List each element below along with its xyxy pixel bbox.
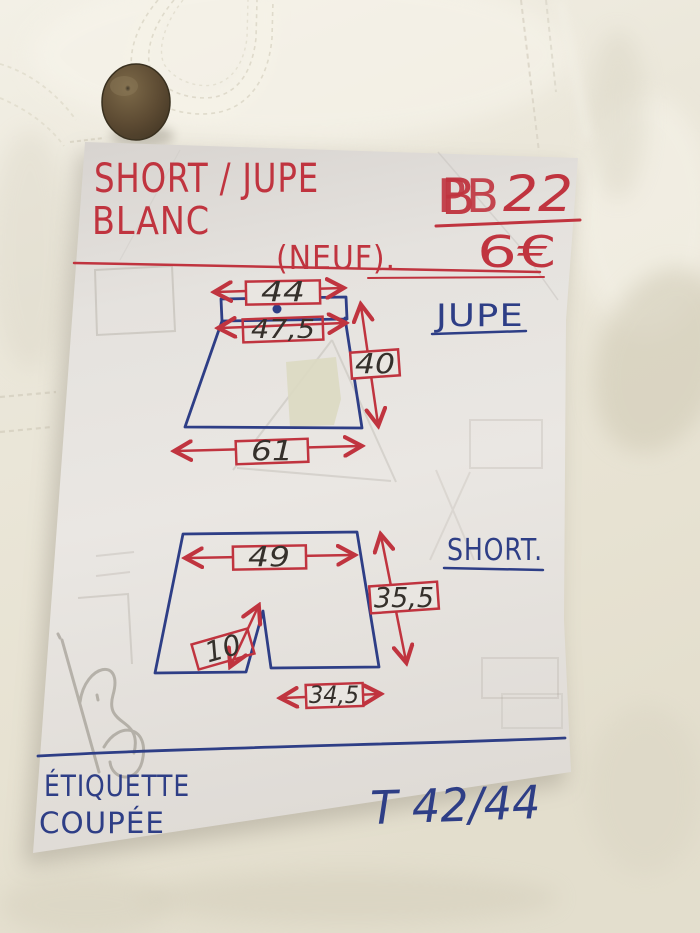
lot-code: PB B 22	[436, 165, 580, 226]
lot-code-overlay: B	[441, 168, 475, 226]
condition-text: (NEUF).	[276, 238, 396, 277]
fabric-fold-shadow	[587, 705, 700, 875]
tape-patch	[286, 357, 341, 427]
lot-code-number: 22	[503, 165, 573, 223]
jupe-label: JUPE	[434, 298, 524, 334]
brass-button-icon	[102, 64, 170, 140]
short-length-value: 35,5	[374, 581, 434, 614]
size-text: T 42/44	[369, 775, 541, 835]
fabric-fold-shadow	[140, 872, 560, 924]
jupe-length-value: 40	[355, 347, 395, 380]
note-title-line2: BLANC	[92, 199, 210, 243]
price-underline-red	[368, 277, 544, 278]
photo-canvas: SHORT / JUPE BLANC PB B 22 (NEUF). 6€ 44	[0, 0, 700, 933]
short-waist-width-value: 49	[248, 540, 290, 573]
short-label: SHORT.	[447, 533, 543, 568]
button-highlight	[110, 76, 138, 96]
jupe-waist-width-value: 47,5	[251, 315, 315, 345]
jupe-hem-width-value: 61	[251, 434, 293, 467]
jupe-top-width-value: 44	[261, 275, 305, 308]
photo-of-handwritten-note: SHORT / JUPE BLANC PB B 22 (NEUF). 6€ 44	[0, 0, 700, 933]
footer-line1: ÉTIQUETTE	[44, 769, 190, 803]
paper-note: SHORT / JUPE BLANC PB B 22 (NEUF). 6€ 44	[24, 142, 580, 866]
footer-line2: COUPÉE	[39, 806, 165, 840]
note-title-line1: SHORT / JUPE	[94, 156, 319, 202]
short-hem-width-value: 34,5	[309, 681, 359, 709]
fabric-fold-shadow	[590, 30, 646, 200]
